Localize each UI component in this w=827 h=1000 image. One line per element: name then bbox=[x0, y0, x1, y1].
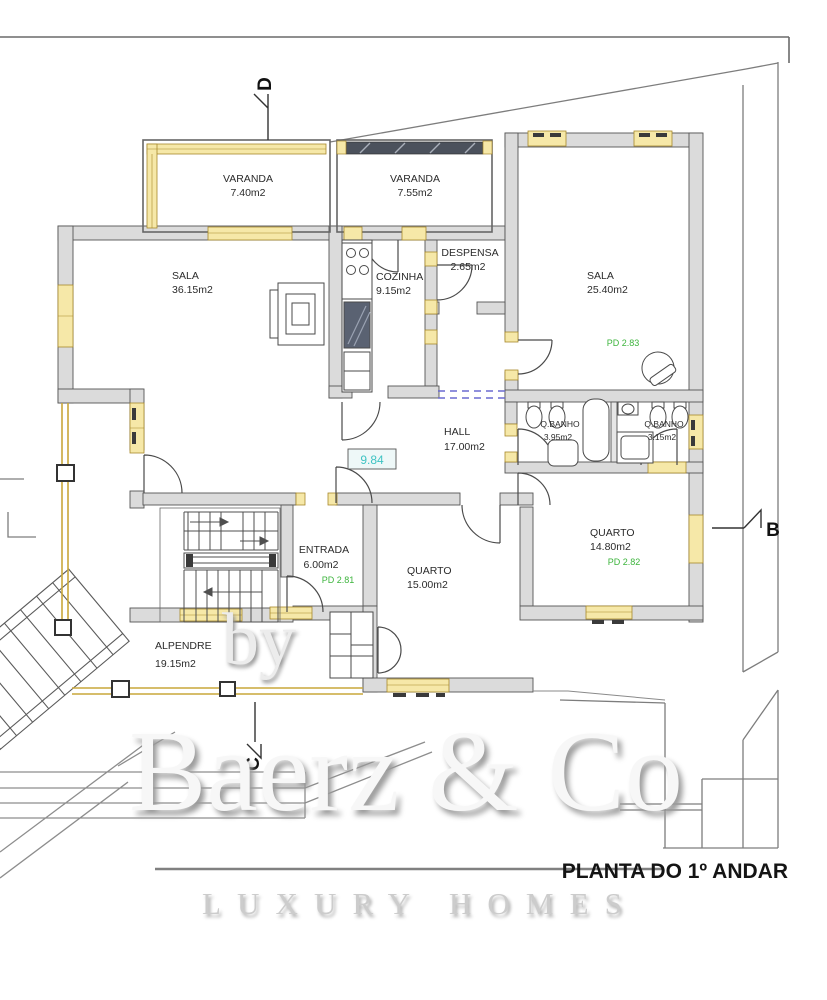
wall-left-mid-b bbox=[130, 491, 144, 508]
entrada-name: ENTRADA bbox=[299, 544, 349, 556]
section-d-label: D bbox=[255, 77, 276, 91]
bath1-seat bbox=[548, 440, 578, 466]
quarto2-name: QUARTO bbox=[590, 527, 635, 539]
section-b-label: B bbox=[766, 520, 780, 541]
varanda1-area: 7.40m2 bbox=[230, 187, 265, 199]
despensa-name: DESPENSA bbox=[441, 247, 498, 259]
floor-plan-page: D B C 9.84 VARANDA 7.40m2 VARANDA 7.55m2… bbox=[0, 0, 827, 1000]
plan-title: PLANTA DO 1º ANDAR bbox=[470, 860, 788, 884]
cozinha-area: 9.15m2 bbox=[376, 285, 411, 297]
alpendre-area: 19.15m2 bbox=[155, 658, 196, 670]
armchair bbox=[636, 346, 681, 391]
wall-hall-bottom-c bbox=[500, 493, 533, 505]
kitchen-counter bbox=[342, 240, 372, 392]
door-sala25 bbox=[518, 340, 552, 374]
quarto2-pd: PD 2.82 bbox=[608, 557, 641, 567]
dashed-opening bbox=[438, 391, 505, 398]
stairs-arrow-down bbox=[204, 588, 262, 596]
hall-area: 17.00m2 bbox=[444, 441, 485, 453]
wall-hall-bottom-a bbox=[143, 493, 296, 505]
hall-name: HALL bbox=[444, 426, 470, 438]
stairs-arrow-up-1 bbox=[190, 518, 228, 526]
qbanho1-area: 3.95m2 bbox=[544, 432, 573, 442]
wall-bath-divider bbox=[611, 402, 617, 462]
sala25-pd: PD 2.83 bbox=[607, 338, 640, 348]
site-terrain-lines bbox=[0, 732, 432, 878]
doorframe-despensa-1 bbox=[425, 252, 437, 266]
doorframe-bath1-1 bbox=[505, 424, 517, 436]
staircase-external bbox=[0, 569, 129, 777]
doorframe-bath1-2 bbox=[505, 452, 517, 462]
fireplace bbox=[270, 283, 324, 345]
entrada-area: 6.00m2 bbox=[303, 559, 338, 571]
doorframe-sala25-1 bbox=[505, 332, 518, 342]
section-marker-c: C bbox=[243, 702, 264, 771]
bathtub bbox=[583, 399, 609, 461]
doorframe-sala25-2 bbox=[505, 370, 518, 380]
section-marker-d: D bbox=[254, 77, 276, 140]
window-quarto2-right bbox=[689, 515, 703, 563]
floor-plan-drawing: D B C 9.84 VARANDA 7.40m2 VARANDA 7.55m2… bbox=[0, 0, 827, 1000]
alpendre-name: ALPENDRE bbox=[155, 640, 212, 652]
window-quarto2-bottom bbox=[586, 606, 632, 619]
sala25-area: 25.40m2 bbox=[587, 284, 628, 296]
site-frame-line bbox=[0, 37, 789, 63]
wall-hall-bottom-b bbox=[336, 493, 460, 505]
sala36-area: 36.15m2 bbox=[172, 284, 213, 296]
staircase-internal bbox=[160, 508, 280, 622]
sala25-name: SALA bbox=[587, 270, 614, 282]
varanda2-area: 7.55m2 bbox=[397, 187, 432, 199]
wall-stairs-entrada bbox=[281, 505, 293, 577]
doorframe-kitchen-1 bbox=[344, 227, 362, 240]
stairs-upper-treads bbox=[184, 512, 278, 550]
site-diagonal-line bbox=[330, 63, 778, 142]
door-closet-double bbox=[378, 627, 401, 673]
doorframe-kitchen-2 bbox=[402, 227, 426, 240]
quarto1-area: 15.00m2 bbox=[407, 579, 448, 591]
varanda2-glazing-strip bbox=[346, 142, 483, 154]
section-marker-b: B bbox=[712, 510, 780, 541]
qbanho2-name: Q.BANHO bbox=[644, 419, 684, 429]
entrada-pd: PD 2.81 bbox=[322, 575, 355, 585]
doorframe-corridor-1 bbox=[425, 330, 437, 344]
section-c-label: C bbox=[243, 757, 264, 771]
doorframe-despensa-2 bbox=[425, 300, 437, 314]
wall-entrada-quarto1 bbox=[363, 505, 377, 606]
cozinha-name: COZINHA bbox=[376, 271, 423, 283]
wall-hall-right-stub bbox=[505, 402, 517, 424]
doorframe-bath2 bbox=[648, 462, 686, 473]
window-sala36-top bbox=[208, 227, 292, 240]
door-quarto1 bbox=[462, 505, 500, 543]
closet bbox=[330, 612, 373, 678]
quarto2-area: 14.80m2 bbox=[590, 541, 631, 553]
qbanho1-name: Q.BANHO bbox=[540, 419, 580, 429]
varanda2-name: VARANDA bbox=[390, 173, 440, 185]
sala36-name: SALA bbox=[172, 270, 199, 282]
stairs-handrail bbox=[184, 553, 278, 568]
door-sala36-hall-upper bbox=[342, 402, 380, 440]
porch-edge-ext bbox=[533, 691, 665, 700]
qbanho2-area: 3.15m2 bbox=[648, 432, 677, 442]
quarto1-name: QUARTO bbox=[407, 565, 452, 577]
despensa-area: 2.65m2 bbox=[450, 261, 485, 273]
level-value: 9.84 bbox=[360, 453, 384, 467]
wall-quarto2-left bbox=[520, 507, 533, 606]
varanda1-name: VARANDA bbox=[223, 173, 273, 185]
wall-cozinha-left bbox=[329, 226, 342, 398]
varanda-structures bbox=[143, 140, 492, 232]
wall-despensa-bottom-b bbox=[477, 302, 505, 314]
wall-hall-top-b bbox=[388, 386, 439, 398]
level-indicator: 9.84 bbox=[348, 449, 396, 469]
door-sala36-porch bbox=[144, 455, 182, 493]
window-quarto1-bottom bbox=[387, 679, 449, 692]
doorframe-entrada-top-1 bbox=[296, 493, 305, 505]
left-edge-marks bbox=[0, 479, 36, 537]
wall-sala25-left-a bbox=[505, 133, 518, 340]
